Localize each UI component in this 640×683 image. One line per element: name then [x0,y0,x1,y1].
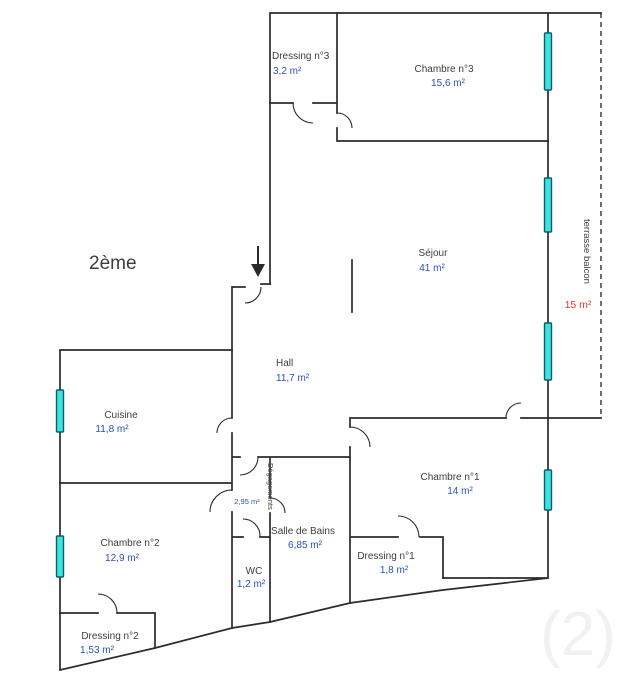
area-label-dressing3: 3,2 m² [273,66,302,77]
window-marker-sejour-bottom [545,323,552,380]
terrace-area-label: 15 m² [565,299,592,311]
room-label-dressing1: Dressing n°1 [357,551,415,562]
door-arc-hall-corridor [240,457,258,475]
room-label-salle-de-bains: Salle de Bains [271,526,335,537]
door-arc-entrance [245,287,261,303]
window-marker-chambre3 [545,33,552,90]
floor-plan-svg: (2) 2ème Dressing n°3 [0,0,640,683]
door-arc-wc [243,519,260,537]
window-marker-cuisine [57,390,64,432]
room-label-hall: Hall [276,358,293,369]
room-label-wc: WC [246,566,263,577]
door-arc-chambre3 [337,113,352,128]
room-label-dressing3: Dressing n°3 [272,51,330,62]
area-label-salle-de-bains: 6,85 m² [288,540,323,551]
room-label-chambre3: Chambre n°3 [414,64,473,75]
window-marker-chambre1 [545,470,552,510]
door-arc-dressing1 [398,516,419,537]
area-label-dressing1: 1,8 m² [380,565,409,576]
area-label-sejour: 41 m² [419,263,445,274]
walls [60,13,601,670]
room-label-chambre2: Chambre n°2 [100,538,159,549]
area-label-chambre2: 12,9 m² [105,553,140,564]
room-label-chambre1: Chambre n°1 [420,472,479,483]
area-label-degagements: 2,95 m² [234,497,260,506]
area-label-dressing2: 1,53 m² [80,645,115,656]
room-label-sejour: Séjour [419,248,449,259]
window-marker-sejour-top [545,178,552,232]
area-label-chambre3: 15,6 m² [431,78,466,89]
area-label-wc: 1,2 m² [237,579,266,590]
door-arc-chambre2 [210,490,232,512]
area-label-chambre1: 14 m² [447,486,473,497]
door-arc-sejour [506,403,521,418]
room-label-degagements: Dégagements [266,463,275,510]
exterior-walls [60,13,601,670]
windows [57,33,552,577]
room-label-dressing2: Dressing n°2 [81,631,139,642]
window-marker-chambre2 [57,536,64,577]
door-arc-cuisine [217,418,232,433]
watermark-text: (2) [540,600,616,669]
entrance-arrow-icon [251,246,265,277]
area-label-cuisine: 11,8 m² [95,424,129,435]
terrace-label: terrasse balcon [581,219,592,284]
door-arc-dressing3 [293,103,313,123]
floor-title: 2ème [89,253,137,274]
area-label-hall: 11,7 m² [276,373,310,384]
interior-walls [60,13,601,648]
room-label-cuisine: Cuisine [104,410,138,421]
door-arc-dressing2 [98,594,117,613]
door-arc-chambre1 [350,427,370,447]
